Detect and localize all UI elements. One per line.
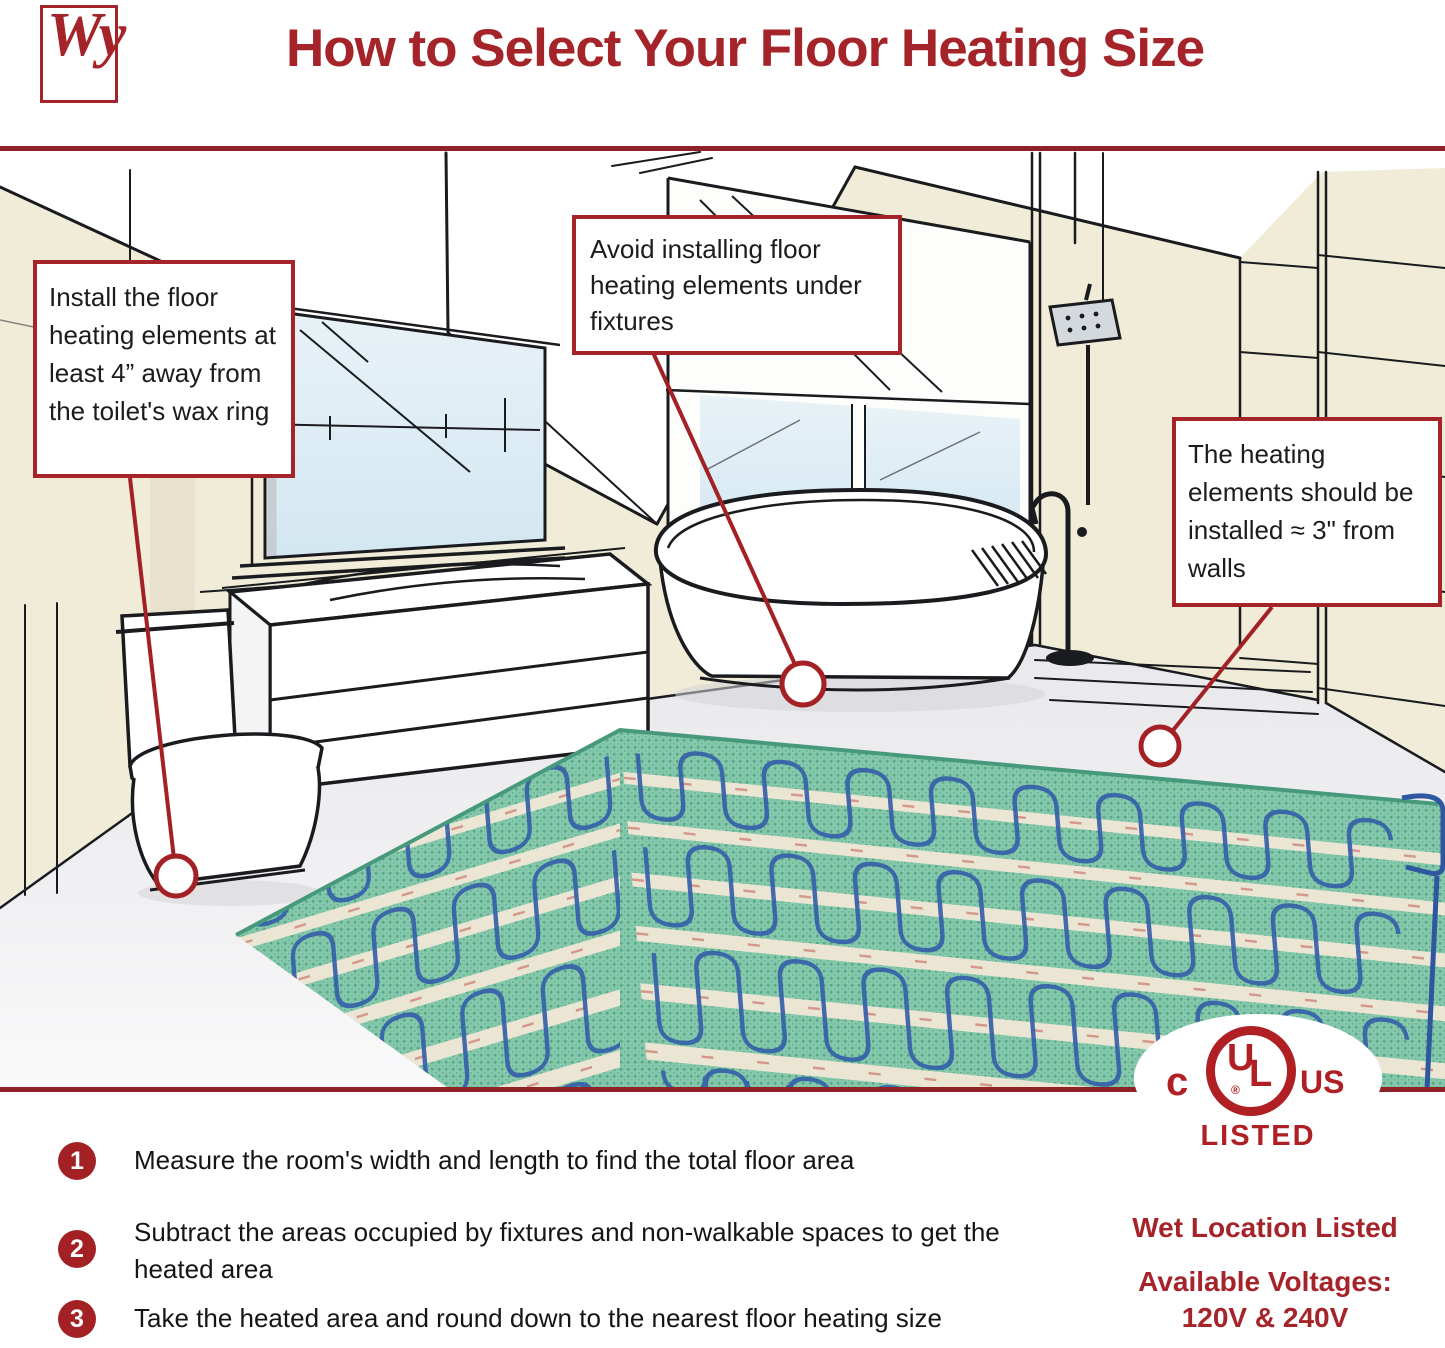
step-row-1: 1 Measure the room's width and length to…: [58, 1142, 1044, 1180]
callout-avoid-fixtures: Avoid installing floor heating elements …: [572, 215, 902, 355]
callout-toilet-text: Install the floor heating elements at le…: [49, 282, 276, 426]
floor-heating-infographic: Wy How to Select Your Floor Heating Size: [0, 0, 1445, 1348]
ul-listed-label: LISTED: [1128, 1120, 1388, 1153]
certification-column: Wet Location Listed Available Voltages: …: [1092, 1212, 1438, 1334]
callout-wall-clearance: The heating elements should be installed…: [1172, 417, 1442, 607]
step-3-text: Take the heated area and round down to t…: [134, 1300, 1044, 1337]
wet-location-label: Wet Location Listed: [1092, 1212, 1438, 1244]
marker-toilet-wax-ring: [156, 856, 196, 896]
callout-toilet-clearance: Install the floor heating elements at le…: [33, 260, 295, 478]
bathtub: [656, 490, 1046, 712]
step-3-badge: 3: [58, 1300, 96, 1338]
voltages-value: 120V & 240V: [1092, 1302, 1438, 1334]
ul-us-suffix: US: [1300, 1064, 1344, 1101]
marker-wall-gap: [1141, 727, 1179, 765]
page-title: How to Select Your Floor Heating Size: [45, 18, 1445, 79]
callout-fixtures-text: Avoid installing floor heating elements …: [590, 234, 862, 336]
step-row-3: 3 Take the heated area and round down to…: [58, 1300, 1044, 1338]
step-2-text: Subtract the areas occupied by fixtures …: [134, 1214, 1044, 1288]
step-1-text: Measure the room's width and length to f…: [134, 1142, 1044, 1179]
ul-canada-prefix: c: [1166, 1060, 1188, 1105]
voltages-label: Available Voltages:: [1092, 1266, 1438, 1298]
marker-under-fixture: [782, 663, 824, 705]
step-2-badge: 2: [58, 1230, 96, 1268]
step-1-badge: 1: [58, 1142, 96, 1180]
step-row-2: 2 Subtract the areas occupied by fixture…: [58, 1214, 1044, 1288]
callout-walls-text: The heating elements should be installed…: [1188, 439, 1413, 583]
ul-circle-icon: U L ®: [1206, 1026, 1296, 1116]
ul-listed-mark: c U L ® US LISTED: [1128, 1008, 1388, 1168]
